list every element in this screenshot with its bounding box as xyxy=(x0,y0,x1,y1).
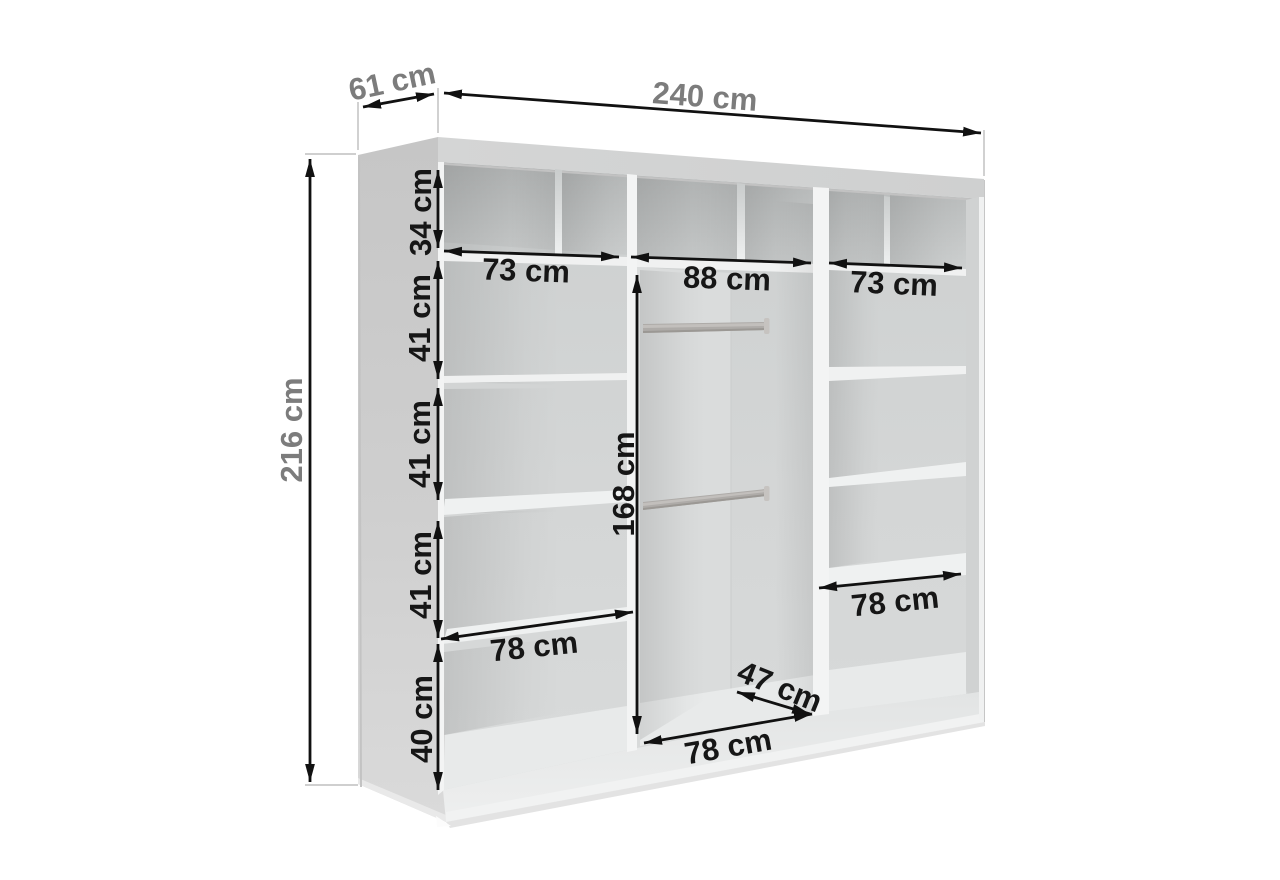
svg-text:88 cm: 88 cm xyxy=(682,259,771,297)
svg-text:41 cm: 41 cm xyxy=(403,531,438,619)
svg-text:41 cm: 41 cm xyxy=(402,400,437,488)
svg-text:40 cm: 40 cm xyxy=(404,675,439,763)
svg-text:73 cm: 73 cm xyxy=(481,251,570,289)
svg-text:34 cm: 34 cm xyxy=(403,168,438,256)
svg-text:73 cm: 73 cm xyxy=(849,264,938,303)
svg-text:216 cm: 216 cm xyxy=(274,377,309,482)
svg-text:168 cm: 168 cm xyxy=(606,431,641,536)
svg-text:41 cm: 41 cm xyxy=(402,274,437,362)
